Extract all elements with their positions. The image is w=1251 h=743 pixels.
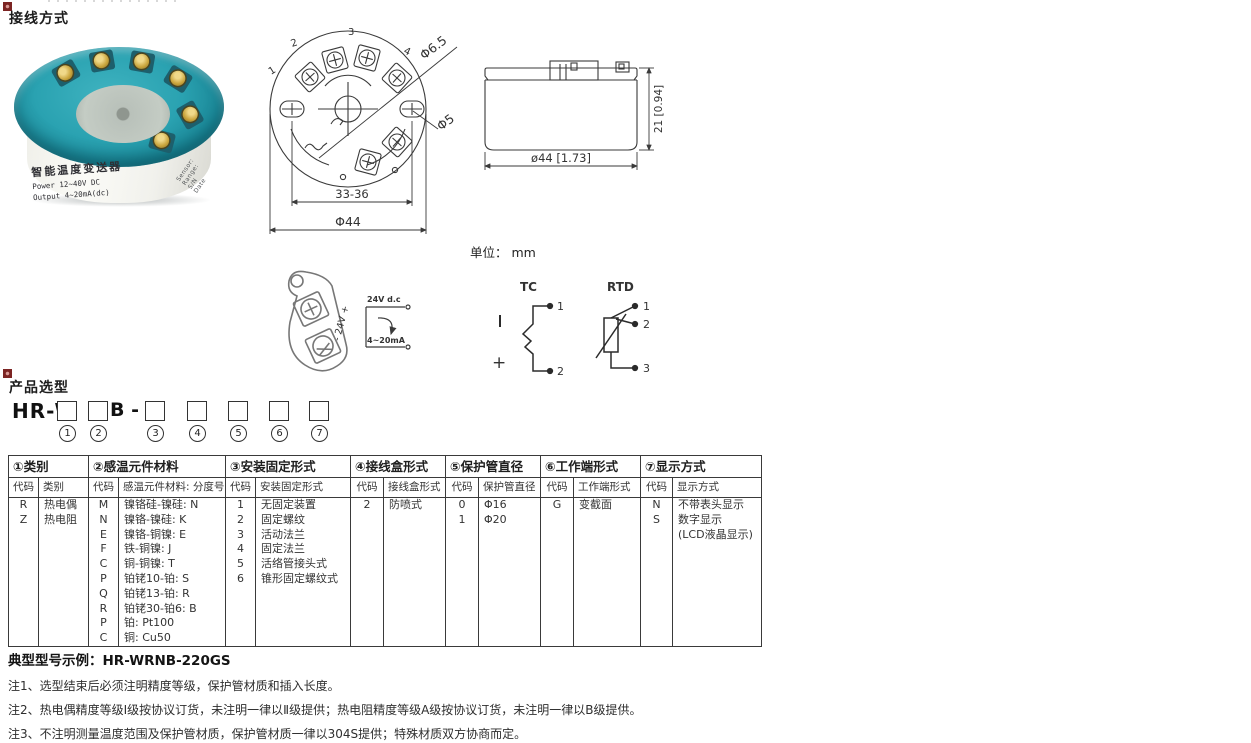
plus-mark: + — [492, 353, 506, 373]
terminal-number: 1 — [267, 65, 278, 78]
dim-span: 33-36 — [335, 187, 368, 201]
terminal-block — [88, 49, 115, 73]
model-box-4 — [187, 401, 207, 421]
screw-icon — [55, 63, 75, 83]
code-cell: Z — [9, 513, 38, 528]
selection-table: ①类别代码类别RZ热电偶热电阻②感温元件材料代码感温元件材料: 分度号MNEFC… — [8, 455, 762, 647]
group-title: ③安装固定形式 — [226, 456, 350, 478]
code-cell: S — [641, 513, 672, 528]
desc-cell: 不带表头显示 — [673, 498, 761, 513]
table-group: ④接线盒形式代码接线盒形式2防喷式 — [351, 456, 446, 646]
desc-column: Φ16Φ20 — [479, 498, 540, 646]
product-label: 智能温度变送器 Power 12~40V DC Output 4~20mA(dc… — [31, 158, 124, 202]
rtd-terminal-1: 1 — [643, 300, 650, 313]
selection-section-title: 产品选型 — [9, 377, 69, 397]
note-3: 注3、不注明测量温度范围及保护管材质，保护管材质一律以304S提供；特殊材质双方… — [8, 725, 526, 742]
code-header: 代码 — [9, 478, 39, 497]
desc-cell: 镍铬-镍硅: K — [119, 513, 225, 528]
group-body: RZ热电偶热电阻 — [9, 498, 88, 646]
dim-hole-large: Φ6.5 — [417, 33, 450, 63]
dim-diameter: Φ44 — [335, 214, 361, 229]
code-header: 代码 — [89, 478, 119, 497]
desc-cell: Φ16 — [479, 498, 540, 513]
group-body: NS不带表头显示数字显示(LCD液晶显示) — [641, 498, 761, 646]
tc-title: TC — [520, 280, 537, 294]
code-header: 代码 — [541, 478, 574, 497]
position-number-4: 4 — [189, 425, 206, 442]
model-mid: B - — [110, 399, 139, 421]
typical-model-example: 典型型号示例：HR-WRNB-220GS — [8, 649, 231, 669]
model-box-6 — [269, 401, 289, 421]
code-cell: 3 — [226, 528, 255, 543]
note-2: 注2、热电偶精度等级I级按协议订货，未注明一律以Ⅱ级提供；热电阻精度等级A级按协… — [8, 701, 642, 718]
top-view-drawing: 1 2 3 4 Φ6.5 Φ5 33-36 Φ44 — [261, 26, 479, 246]
group-subheader: 代码类别 — [9, 478, 88, 498]
group-body: 01Φ16Φ20 — [446, 498, 540, 646]
group-body: 123456无固定装置固定螺纹活动法兰固定法兰活络管接头式锥形固定螺纹式 — [226, 498, 350, 646]
code-cell: N — [89, 513, 118, 528]
group-body: 2防喷式 — [351, 498, 445, 646]
product-photo: 智能温度变送器 Power 12~40V DC Output 4~20mA(dc… — [12, 45, 227, 207]
code-cell: R — [89, 602, 118, 617]
code-cell: M — [89, 498, 118, 513]
desc-column: 镍铬硅-镍硅: N镍铬-镍硅: K镍铬-铜镍: E铁-铜镍: J铜-铜镍: T铂… — [119, 498, 225, 646]
desc-header: 显示方式 — [673, 478, 761, 497]
code-cell: G — [541, 498, 573, 513]
group-title: ⑤保护管直径 — [446, 456, 540, 478]
desc-column: 无固定装置固定螺纹活动法兰固定法兰活络管接头式锥形固定螺纹式 — [256, 498, 350, 646]
desc-cell: 镍铬-铜镍: E — [119, 528, 225, 543]
code-cell: R — [9, 498, 38, 513]
code-cell: 0 — [446, 498, 478, 513]
side-view-drawing: ø44 [1.73] 21 [0.94] — [478, 52, 670, 177]
table-group: ③安装固定形式代码安装固定形式123456无固定装置固定螺纹活动法兰固定法兰活络… — [226, 456, 351, 646]
terminal-number: 4 — [402, 46, 412, 59]
current-label: 4~20mA — [367, 336, 406, 345]
rtd-terminal-2: 2 — [643, 318, 650, 331]
group-title: ①类别 — [9, 456, 88, 478]
unit-label: 单位： mm — [470, 242, 536, 261]
group-subheader: 代码感温元件材料: 分度号 — [89, 478, 225, 498]
code-column: MNEFCPQRPC — [89, 498, 119, 646]
code-cell: C — [89, 631, 118, 646]
code-cell: 1 — [226, 498, 255, 513]
desc-cell: 热电阻 — [39, 513, 88, 528]
group-title: ⑥工作端形式 — [541, 456, 640, 478]
center-plate — [76, 85, 170, 143]
desc-column: 变截面 — [574, 498, 640, 646]
desc-column: 不带表头显示数字显示(LCD液晶显示) — [673, 498, 761, 646]
desc-cell: 镍铬硅-镍硅: N — [119, 498, 225, 513]
screw-icon — [133, 53, 150, 70]
desc-header: 类别 — [39, 478, 88, 497]
code-cell: F — [89, 542, 118, 557]
code-cell: E — [89, 528, 118, 543]
code-column: 123456 — [226, 498, 256, 646]
rtd-title: RTD — [607, 280, 634, 294]
desc-cell: 固定法兰 — [256, 542, 350, 557]
tc-lines — [500, 304, 552, 374]
transmitter-top — [14, 47, 224, 167]
code-cell: 6 — [226, 572, 255, 587]
code-cell: 2 — [351, 498, 383, 513]
group-subheader: 代码保护管直径 — [446, 478, 540, 498]
position-number-1: 1 — [59, 425, 76, 442]
table-group: ⑦显示方式代码显示方式NS不带表头显示数字显示(LCD液晶显示) — [641, 456, 761, 646]
supply-label: 24V d.c — [367, 295, 401, 304]
desc-column: 防喷式 — [384, 498, 445, 646]
leader-lines — [319, 47, 457, 158]
desc-cell: 铜: Cu50 — [119, 631, 225, 646]
code-cell: Q — [89, 587, 118, 602]
table-group: ②感温元件材料代码感温元件材料: 分度号MNEFCPQRPC镍铬硅-镍硅: N镍… — [89, 456, 226, 646]
code-header: 代码 — [641, 478, 673, 497]
group-body: G变截面 — [541, 498, 640, 646]
group-title: ②感温元件材料 — [89, 456, 225, 478]
note-1: 注1、选型结束后必须注明精度等级，保护管材质和插入长度。 — [8, 677, 340, 694]
tc-diagram: TC 1 2 + — [486, 278, 570, 386]
code-cell: 2 — [226, 513, 255, 528]
screw-icon — [93, 52, 110, 69]
code-header: 代码 — [446, 478, 479, 497]
cropped-previous-content — [48, 0, 178, 2]
position-number-5: 5 — [230, 425, 247, 442]
code-cell: N — [641, 498, 672, 513]
group-subheader: 代码工作端形式 — [541, 478, 640, 498]
group-subheader: 代码显示方式 — [641, 478, 761, 498]
tc-terminal-2: 2 — [557, 365, 564, 378]
desc-cell: 锥形固定螺纹式 — [256, 572, 350, 587]
desc-cell: 热电偶 — [39, 498, 88, 513]
model-box-7 — [309, 401, 329, 421]
code-column: 2 — [351, 498, 384, 646]
code-cell: P — [89, 572, 118, 587]
rtd-diagram: RTD 1 2 3 — [583, 278, 657, 386]
position-number-2: 2 — [90, 425, 107, 442]
desc-cell: 铂铑13-铂: R — [119, 587, 225, 602]
desc-cell: 活络管接头式 — [256, 557, 350, 572]
dim-hole-small: Φ5 — [434, 111, 457, 134]
terminal-number: 3 — [348, 27, 354, 38]
code-column: RZ — [9, 498, 39, 646]
code-header: 代码 — [351, 478, 384, 497]
code-cell: 1 — [446, 513, 478, 528]
desc-header: 保护管直径 — [479, 478, 540, 497]
terminal-number: 2 — [290, 37, 299, 49]
desc-cell: 铁-铜镍: J — [119, 542, 225, 557]
desc-cell: 变截面 — [574, 498, 640, 513]
side-dim-width: ø44 [1.73] — [531, 151, 591, 165]
desc-header: 安装固定形式 — [256, 478, 350, 497]
model-box-2 — [88, 401, 108, 421]
loop-schematic: 24V d.c 4~20mA — [360, 293, 424, 357]
position-number-6: 6 — [271, 425, 288, 442]
desc-cell: 铂铑30-铂6: B — [119, 602, 225, 617]
screw-icon — [168, 68, 189, 89]
desc-header: 接线盒形式 — [384, 478, 445, 497]
terminal-block — [128, 50, 155, 74]
code-column: 01 — [446, 498, 479, 646]
wiring-section-title: 接线方式 — [9, 8, 69, 28]
desc-cell: 防喷式 — [384, 498, 445, 513]
screw-icon — [180, 104, 200, 124]
terminal-block — [51, 58, 82, 87]
terminal-block — [175, 100, 204, 131]
tc-terminal-1: 1 — [557, 300, 564, 313]
code-cell: 4 — [226, 542, 255, 557]
model-code-row: HR-W B - 1 2 3 4 5 6 7 — [12, 398, 372, 446]
sensor-symbol — [331, 119, 343, 125]
desc-cell: 铜-铜镍: T — [119, 557, 225, 572]
code-column: NS — [641, 498, 673, 646]
lug-wiring-drawing: - 24V + — [280, 266, 370, 388]
table-group: ⑤保护管直径代码保护管直径01Φ16Φ20 — [446, 456, 541, 646]
group-body: MNEFCPQRPC镍铬硅-镍硅: N镍铬-镍硅: K镍铬-铜镍: E铁-铜镍:… — [89, 498, 225, 646]
rtd-terminal-3: 3 — [643, 362, 650, 375]
table-group: ⑥工作端形式代码工作端形式G变截面 — [541, 456, 641, 646]
desc-cell: 固定螺纹 — [256, 513, 350, 528]
code-cell: C — [89, 557, 118, 572]
code-cell — [641, 528, 672, 543]
lug-voltage-label: - 24V + — [332, 305, 352, 343]
side-dim-height: 21 [0.94] — [653, 85, 665, 133]
desc-cell: 铂: Pt100 — [119, 616, 225, 631]
code-cell: 5 — [226, 557, 255, 572]
model-box-3 — [145, 401, 165, 421]
position-number-3: 3 — [147, 425, 164, 442]
desc-cell: 数字显示 — [673, 513, 761, 528]
terminal-block — [163, 64, 194, 94]
sensor-symbol — [305, 143, 327, 150]
desc-cell: 活动法兰 — [256, 528, 350, 543]
side-outline — [485, 61, 637, 150]
code-cell: P — [89, 616, 118, 631]
desc-cell: 铂铑10-铂: S — [119, 572, 225, 587]
code-column: G — [541, 498, 574, 646]
model-box-1 — [57, 401, 77, 421]
group-subheader: 代码接线盒形式 — [351, 478, 445, 498]
model-box-5 — [228, 401, 248, 421]
group-title: ④接线盒形式 — [351, 456, 445, 478]
code-header: 代码 — [226, 478, 256, 497]
group-subheader: 代码安装固定形式 — [226, 478, 350, 498]
desc-header: 工作端形式 — [574, 478, 640, 497]
position-number-7: 7 — [311, 425, 328, 442]
group-title: ⑦显示方式 — [641, 456, 761, 478]
table-group: ①类别代码类别RZ热电偶热电阻 — [9, 456, 89, 646]
desc-header: 感温元件材料: 分度号 — [119, 478, 225, 497]
rtd-lines — [596, 304, 637, 371]
desc-cell: (LCD液晶显示) — [673, 528, 761, 543]
desc-cell: 无固定装置 — [256, 498, 350, 513]
desc-column: 热电偶热电阻 — [39, 498, 88, 646]
datasheet-page: 接线方式 智能温度变送器 Power 12~40V DC Output 4~20… — [0, 0, 1251, 743]
desc-cell: Φ20 — [479, 513, 540, 528]
screw-terminals — [294, 45, 412, 176]
